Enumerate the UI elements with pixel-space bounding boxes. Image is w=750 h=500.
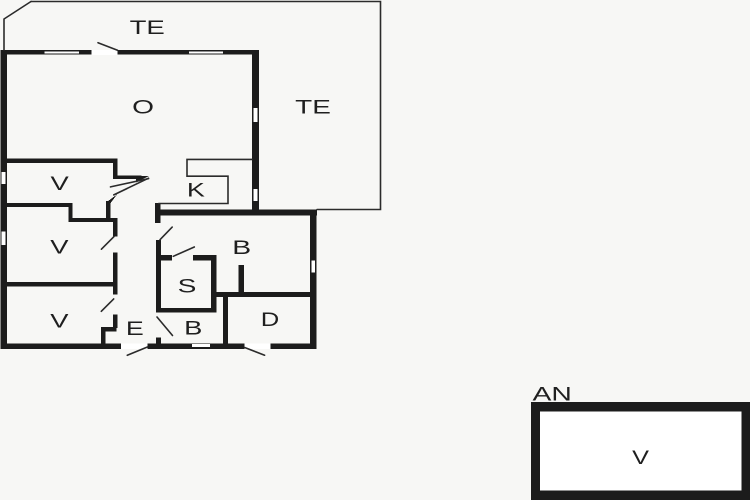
svg-text:V: V bbox=[50, 237, 69, 258]
svg-text:V: V bbox=[50, 173, 69, 194]
svg-text:B: B bbox=[184, 318, 202, 339]
svg-text:E: E bbox=[126, 318, 144, 339]
svg-text:D: D bbox=[261, 309, 280, 330]
svg-text:K: K bbox=[187, 180, 206, 201]
svg-text:V: V bbox=[632, 447, 649, 468]
svg-text:O: O bbox=[132, 97, 154, 118]
svg-text:S: S bbox=[178, 276, 197, 297]
svg-text:AN: AN bbox=[533, 384, 572, 405]
svg-text:V: V bbox=[50, 311, 69, 332]
svg-text:B: B bbox=[232, 237, 251, 258]
svg-text:TE: TE bbox=[295, 97, 331, 118]
svg-text:TE: TE bbox=[130, 18, 165, 39]
